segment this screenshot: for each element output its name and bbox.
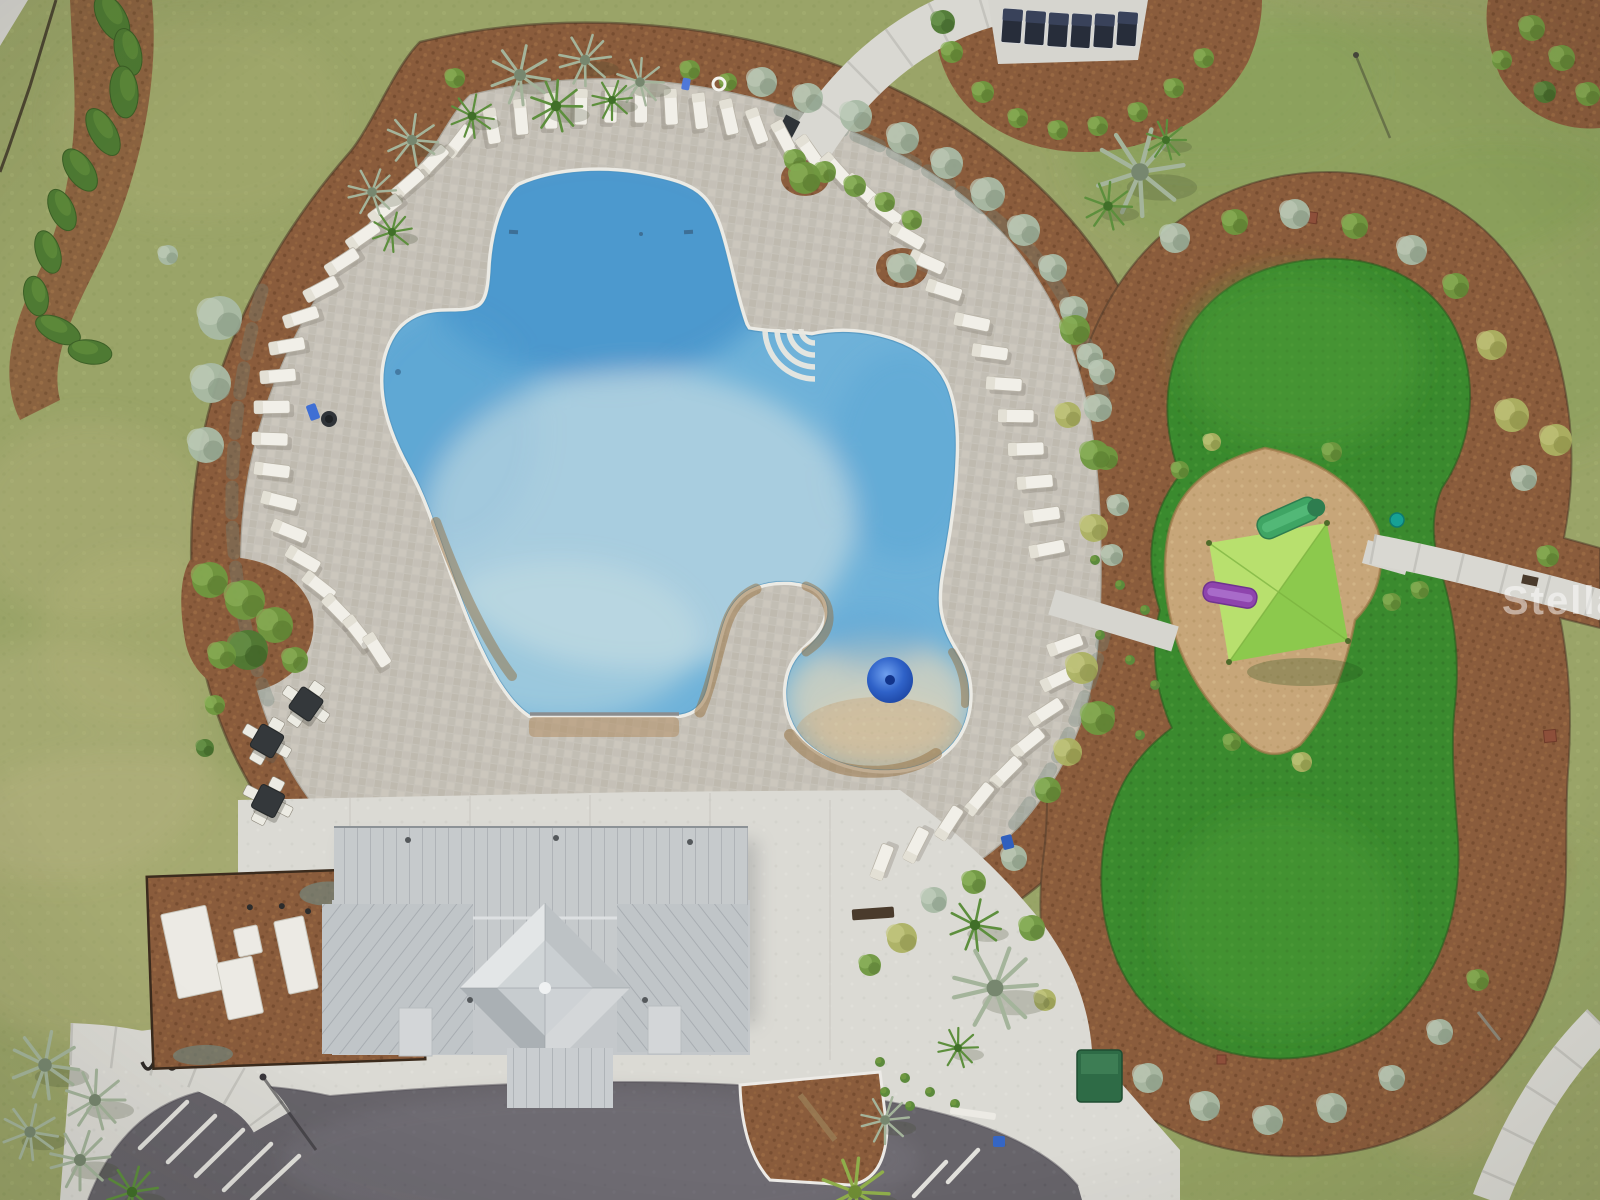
aerial-photo: StellarMLS [0, 0, 1600, 1200]
watermark: StellarMLS [1502, 579, 1600, 623]
vignette [0, 0, 1600, 1200]
aerial-photo-canvas: StellarMLS [0, 0, 1600, 1200]
